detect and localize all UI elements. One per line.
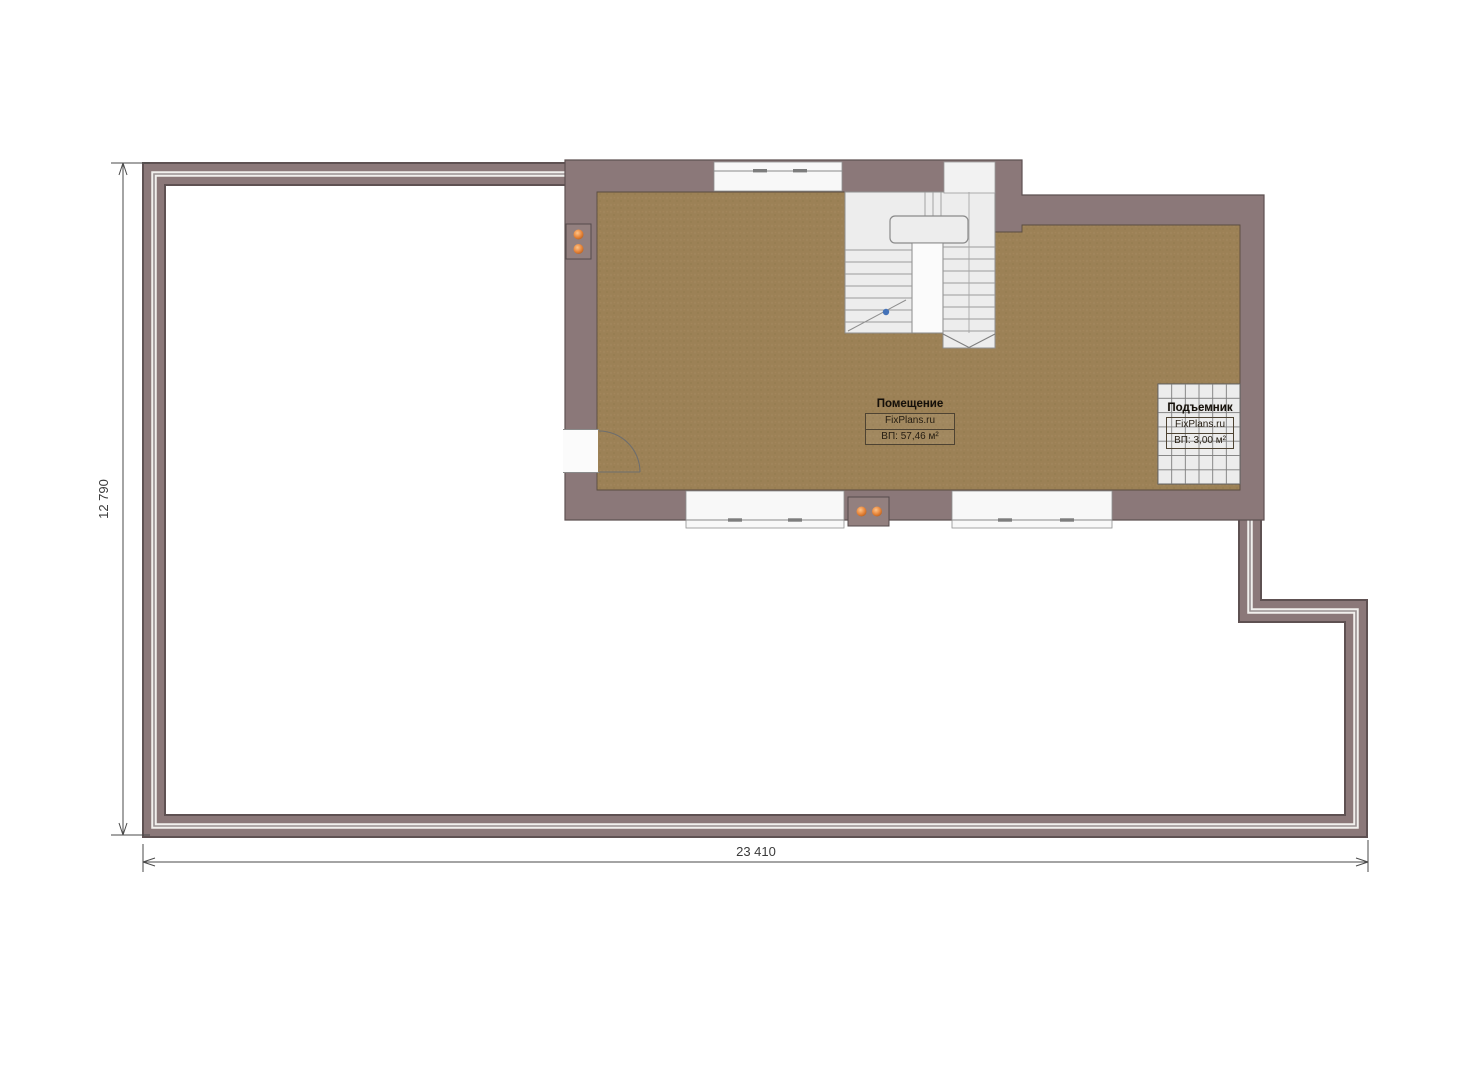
room-label: Помещение FixPlans.ru ВП: 57,46 м² — [858, 398, 962, 445]
stair-handrail — [890, 216, 968, 243]
floor-plan-drawing — [0, 0, 1474, 1080]
lift-area: ВП: 3,00 м² — [1167, 433, 1233, 449]
outlet-dot — [574, 244, 584, 254]
stair-wall-opening — [944, 162, 995, 193]
floor-plan-page: Помещение FixPlans.ru ВП: 57,46 м² Подъе… — [0, 0, 1474, 1080]
lift-label: Подъемник FixPlans.ru ВП: 3,00 м² — [1154, 402, 1246, 449]
window-bottom-right — [952, 491, 1112, 528]
stair-central-void — [912, 243, 943, 333]
outlet-bottom-wall — [848, 497, 889, 526]
dimension-width-label: 23 410 — [700, 844, 812, 859]
window-bottom-left — [686, 491, 844, 528]
room-brand: FixPlans.ru — [866, 414, 954, 429]
outlet-left-wall — [566, 224, 591, 259]
room-title: Помещение — [858, 398, 962, 411]
dimension-height-label: 12 790 — [96, 454, 112, 544]
outlet-dot — [857, 507, 867, 517]
outlet-dot — [872, 507, 882, 517]
lift-info-box: FixPlans.ru ВП: 3,00 м² — [1166, 417, 1234, 449]
lift-brand: FixPlans.ru — [1167, 418, 1233, 433]
room-info-box: FixPlans.ru ВП: 57,46 м² — [865, 413, 955, 445]
door-opening — [563, 430, 598, 473]
room-area: ВП: 57,46 м² — [866, 429, 954, 445]
outlet-dot — [574, 230, 584, 240]
lift-title: Подъемник — [1154, 402, 1246, 415]
stair-start-marker-dot — [883, 309, 889, 315]
window-top — [714, 162, 842, 191]
